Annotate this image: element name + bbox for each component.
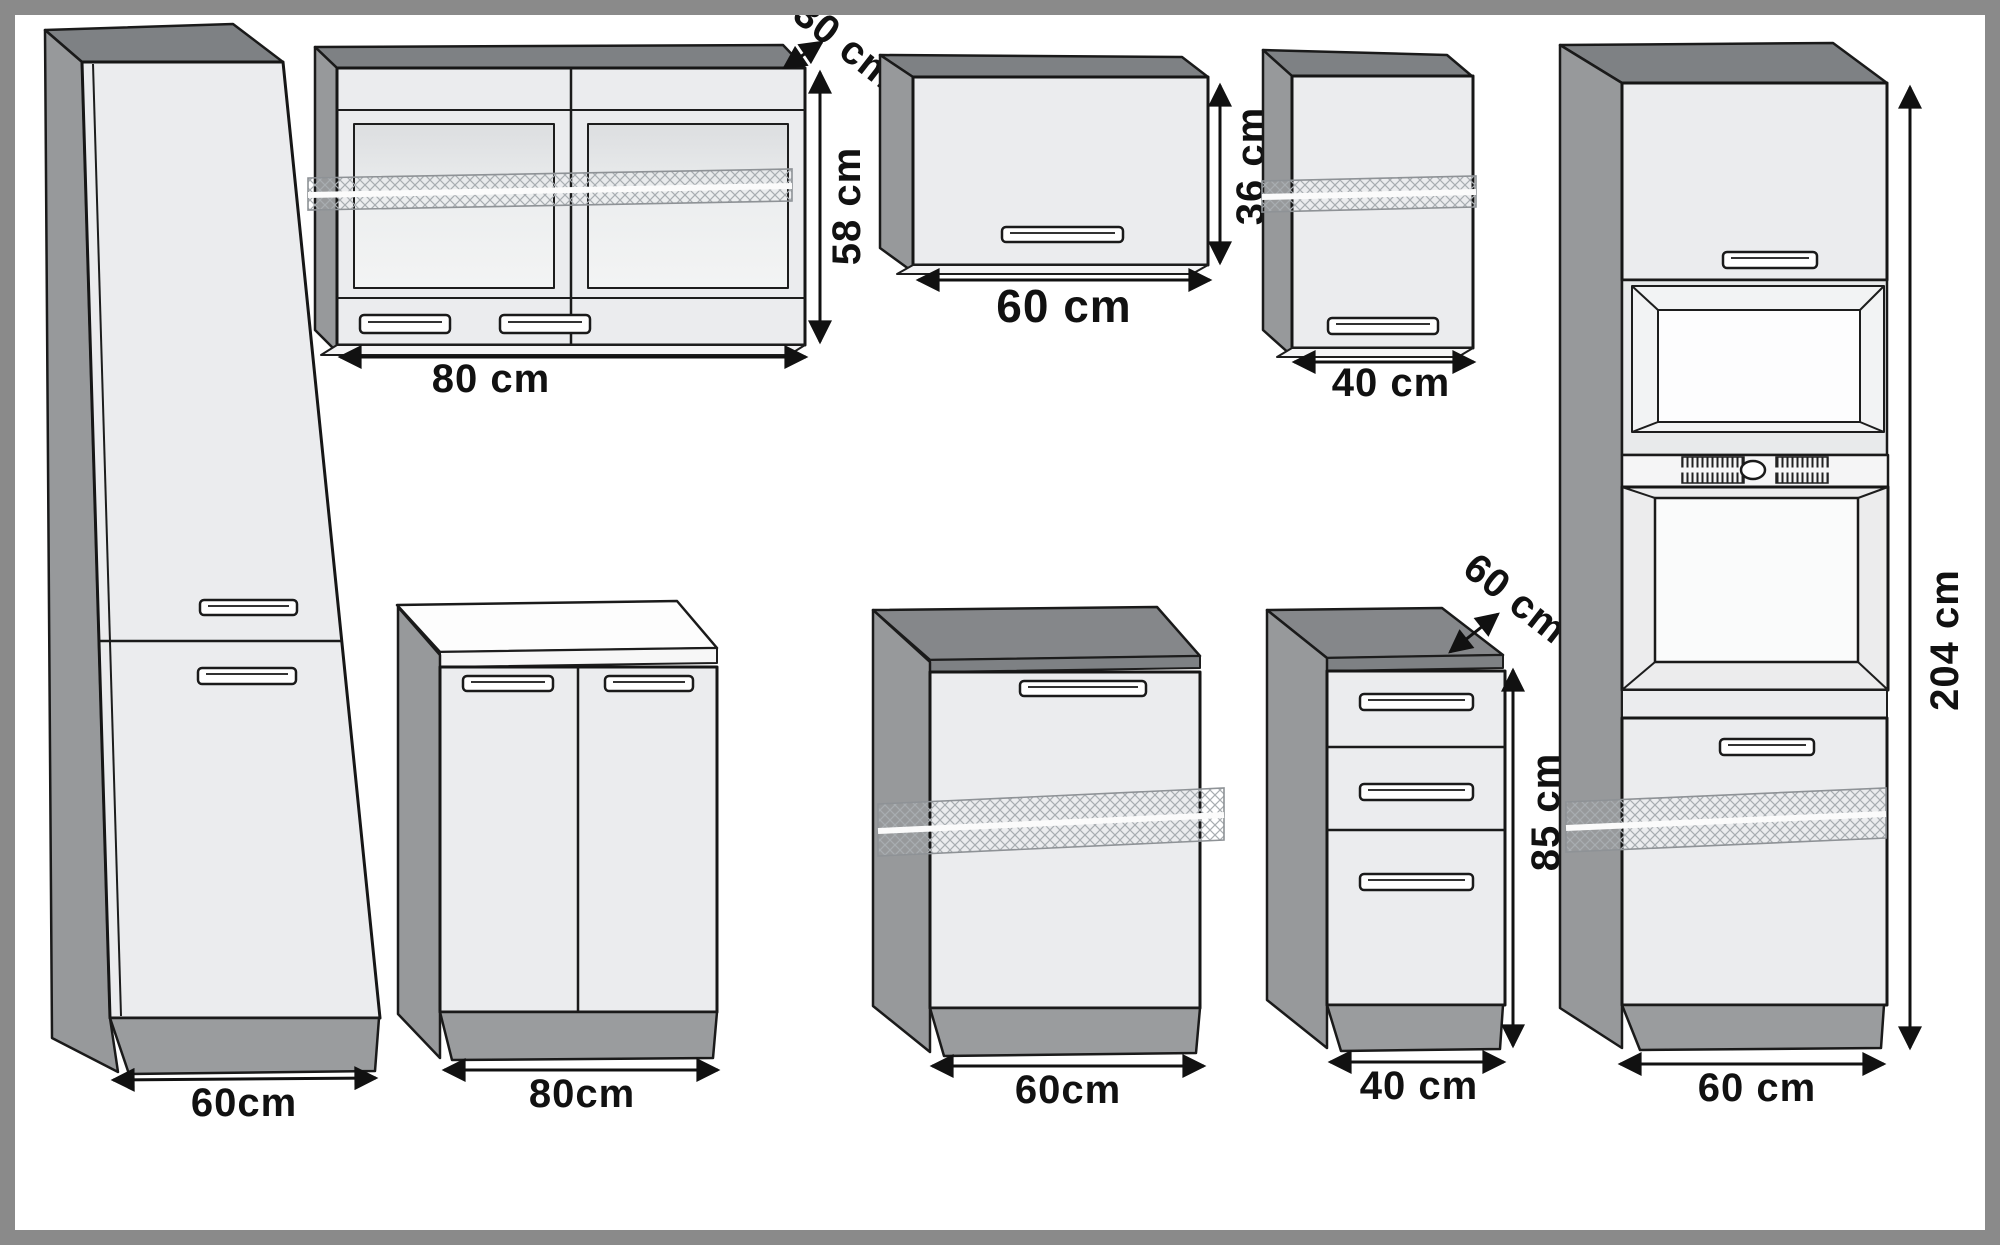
diagram-canvas: 60cm 80 cm 58 cm 30 cm	[0, 0, 2000, 1245]
countertop	[397, 601, 717, 652]
plinth	[110, 1018, 379, 1074]
tower-top-door	[1622, 83, 1887, 280]
base-60-top-face	[873, 607, 1200, 660]
wall-80-top-face	[315, 45, 805, 68]
shelf-hatched	[1262, 176, 1476, 212]
drawer-40-side-panel	[1267, 610, 1327, 1048]
door-handle-icon	[360, 315, 450, 333]
dim-label-base-60-width: 60cm	[1015, 1068, 1121, 1112]
plinth	[1327, 1005, 1503, 1051]
wall-60-side-panel	[880, 55, 913, 272]
base-80-side-panel	[398, 607, 440, 1058]
bottom-panel	[1277, 348, 1473, 357]
oven-tower-cabinet: 60 cm 204 cm	[1560, 43, 1967, 1110]
base-60-top-edge	[930, 656, 1200, 672]
door-handle-icon	[500, 315, 590, 333]
dim-label-drawer-40-width: 40 cm	[1360, 1064, 1478, 1108]
bottom-panel	[321, 345, 805, 355]
wall-40-top-face	[1263, 50, 1473, 77]
plinth	[440, 1012, 717, 1060]
dim-label-wall-80-height: 58 cm	[825, 147, 869, 265]
dim-label-tall-left-width: 60cm	[191, 1081, 297, 1125]
door-handle-icon	[1328, 318, 1438, 334]
dim-label-tower-width: 60 cm	[1698, 1066, 1816, 1110]
wall-60-top-face	[880, 55, 1208, 77]
countertop-edge	[440, 648, 717, 667]
door-handle-icon	[200, 600, 297, 615]
drawer-cabinet-40: 40 cm 85 cm 60 cm	[1267, 545, 1576, 1108]
niche-inner	[1658, 310, 1860, 422]
door-handle-icon	[605, 676, 693, 691]
drawer-handle-icon	[1360, 784, 1473, 800]
dim-label-wall-40-width: 40 cm	[1332, 361, 1450, 405]
tower-side-panel	[1560, 45, 1622, 1048]
door-handle-icon	[1720, 739, 1814, 755]
drawer-handle-icon	[1360, 694, 1473, 710]
dim-label-base-80-width: 80cm	[529, 1072, 635, 1116]
door-handle-icon	[198, 668, 296, 684]
drawer-40-front	[1327, 671, 1505, 1005]
dim-label-wall-80-width: 80 cm	[432, 357, 550, 401]
door-handle-icon	[463, 676, 553, 691]
cabinet-dimension-diagram: 60cm 80 cm 58 cm 30 cm	[0, 0, 2000, 1245]
wall-cabinet-80: 80 cm 58 cm 30 cm	[308, 0, 906, 401]
glass-pane-right	[588, 124, 788, 288]
tower-bottom-door	[1622, 718, 1887, 1005]
width-dimension-arrow	[113, 1078, 376, 1080]
door-handle-icon	[1020, 681, 1146, 696]
door-handle-icon	[1002, 227, 1123, 242]
base-cabinet-80: 80cm	[397, 601, 718, 1116]
plinth	[1622, 1005, 1884, 1050]
bottom-panel	[897, 265, 1208, 274]
dim-label-wall-60-width: 60 cm	[996, 280, 1131, 332]
drawer-40-top-edge	[1327, 655, 1503, 671]
base-cabinet-60: 60cm	[873, 607, 1224, 1112]
oven-control-panel	[1622, 455, 1888, 487]
dim-label-tower-height: 204 cm	[1923, 569, 1967, 711]
oven-window	[1655, 498, 1858, 662]
drawer-handle-icon	[1360, 874, 1473, 890]
tall-cabinet-top-face	[45, 24, 283, 62]
wall-cabinet-40: 40 cm	[1262, 50, 1476, 405]
oven-door	[1622, 487, 1888, 690]
door-handle-icon	[1723, 252, 1817, 268]
plinth	[930, 1008, 1200, 1056]
wall-cabinet-60: 60 cm 36 cm	[880, 55, 1273, 332]
tower-mid-band	[1622, 690, 1887, 718]
wall-40-front	[1292, 76, 1473, 348]
oven-knob-icon	[1741, 461, 1765, 479]
